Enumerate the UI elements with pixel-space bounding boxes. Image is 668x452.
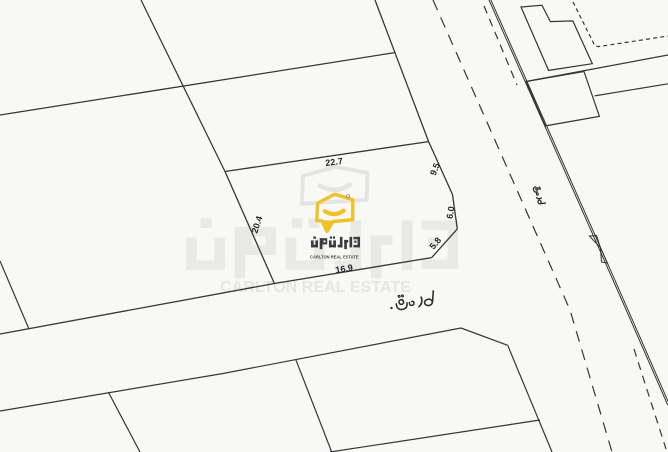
svg-text:CARLTON REAL ESTATE: CARLTON REAL ESTATE <box>220 279 411 296</box>
svg-text:6.0: 6.0 <box>444 206 456 220</box>
svg-text:CARLTON REAL ESTATE: CARLTON REAL ESTATE <box>310 254 359 259</box>
